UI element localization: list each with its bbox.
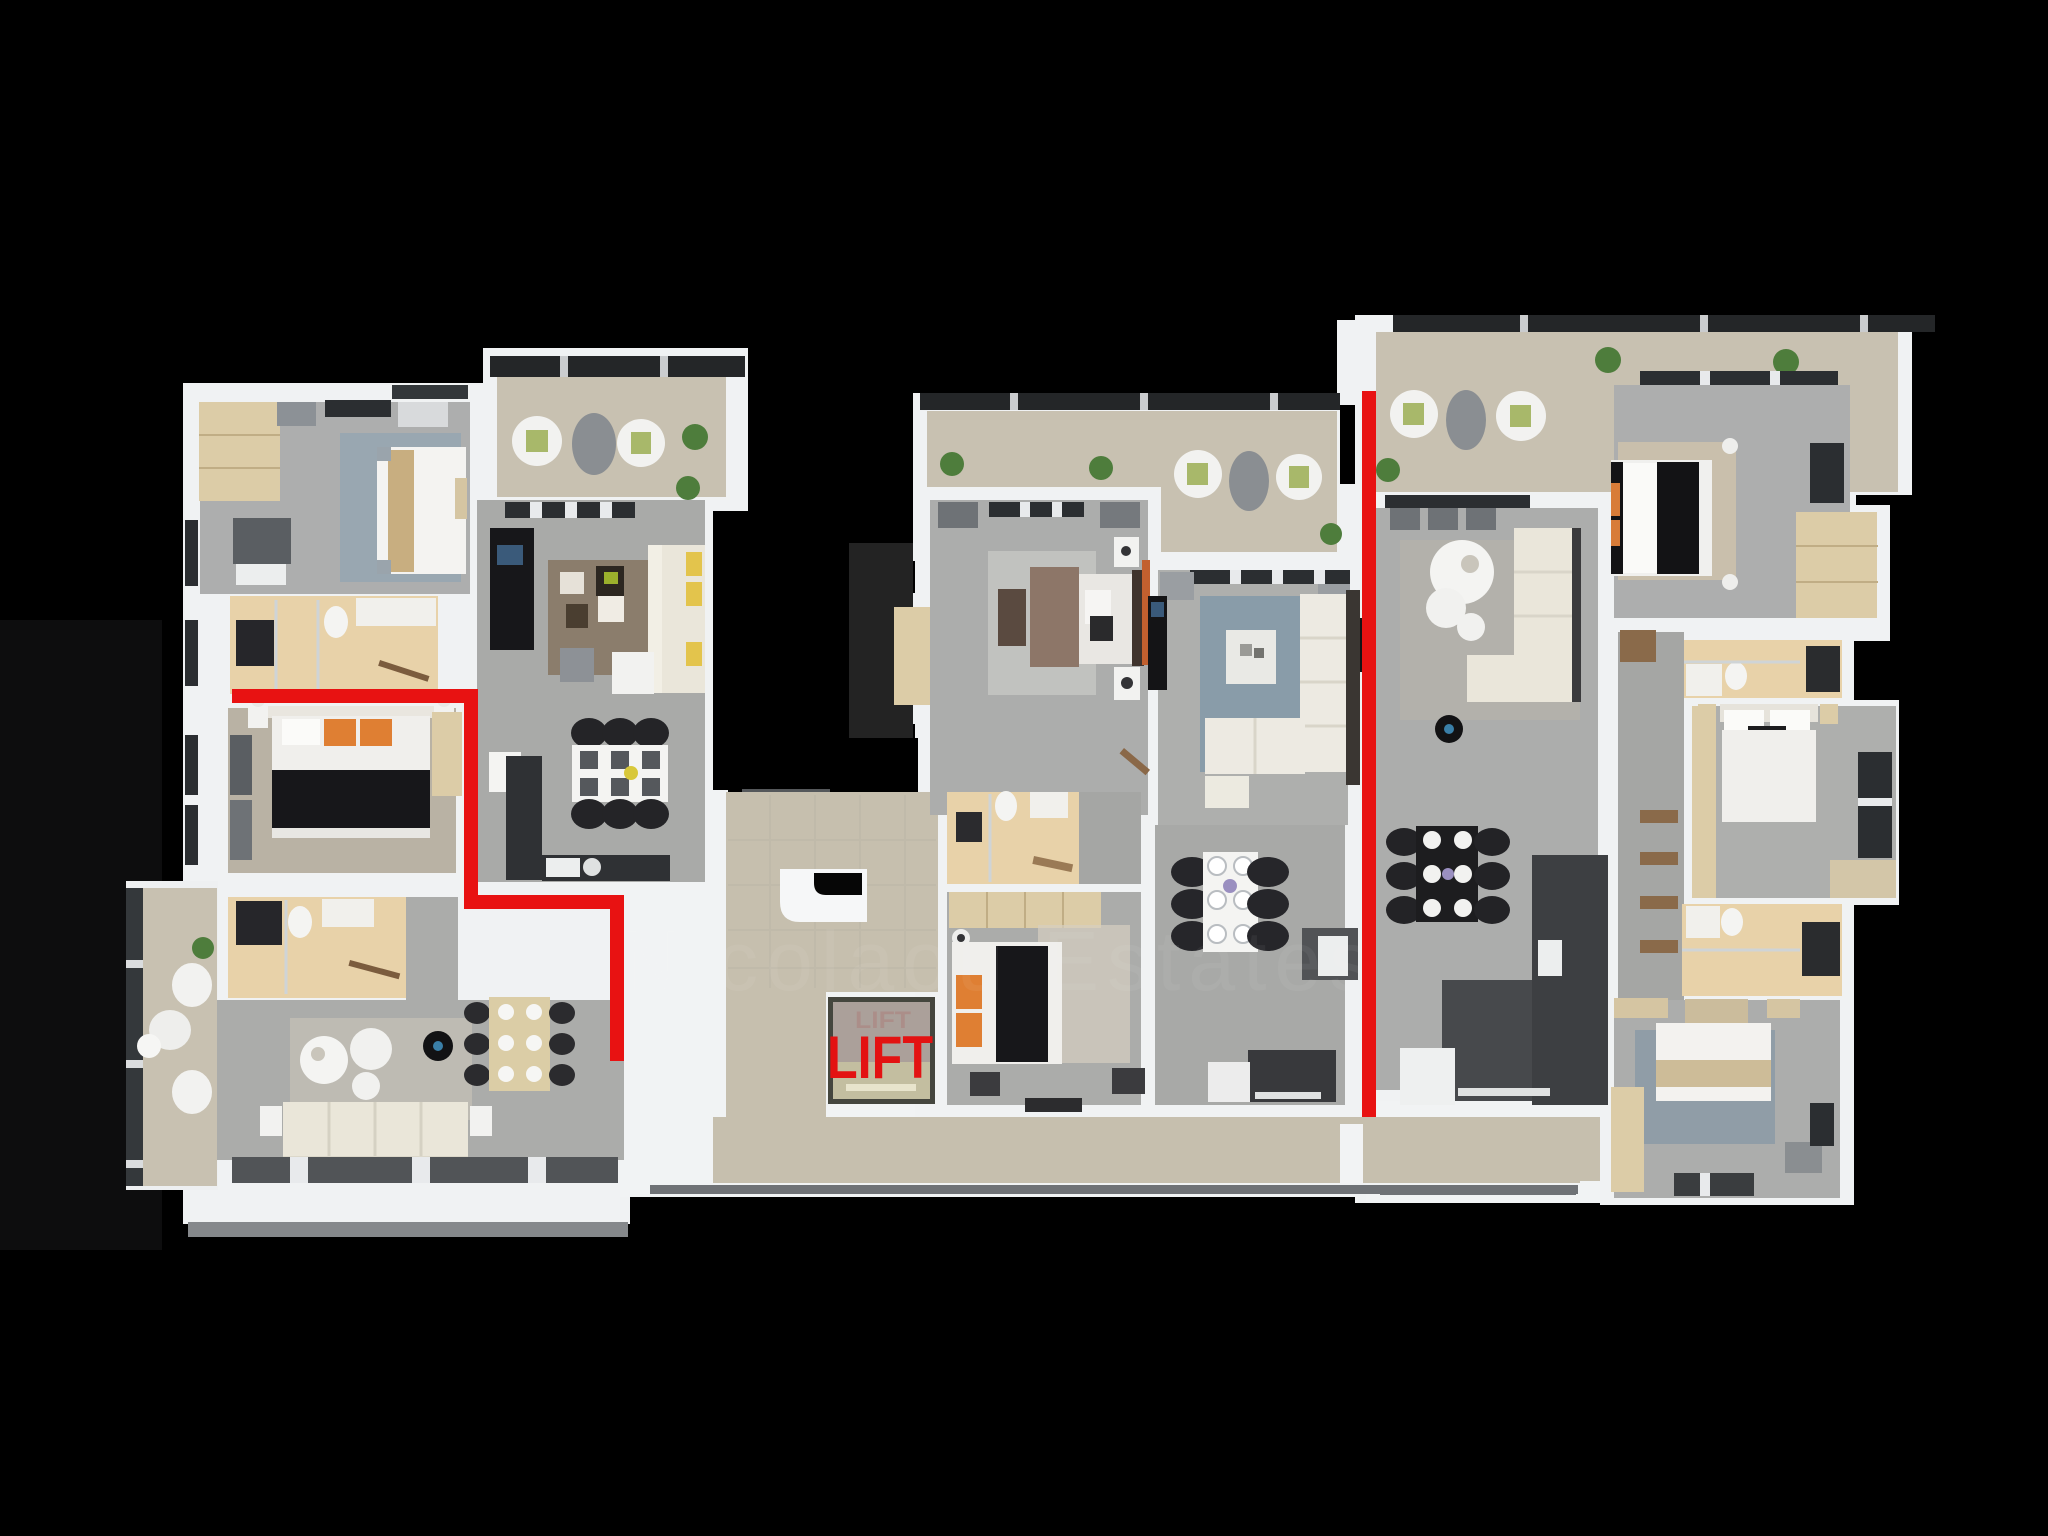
svg-text:Nicolaou Estates: Nicolaou Estates [621,914,1379,1008]
svg-text:LIFT: LIFT [827,1024,933,1091]
